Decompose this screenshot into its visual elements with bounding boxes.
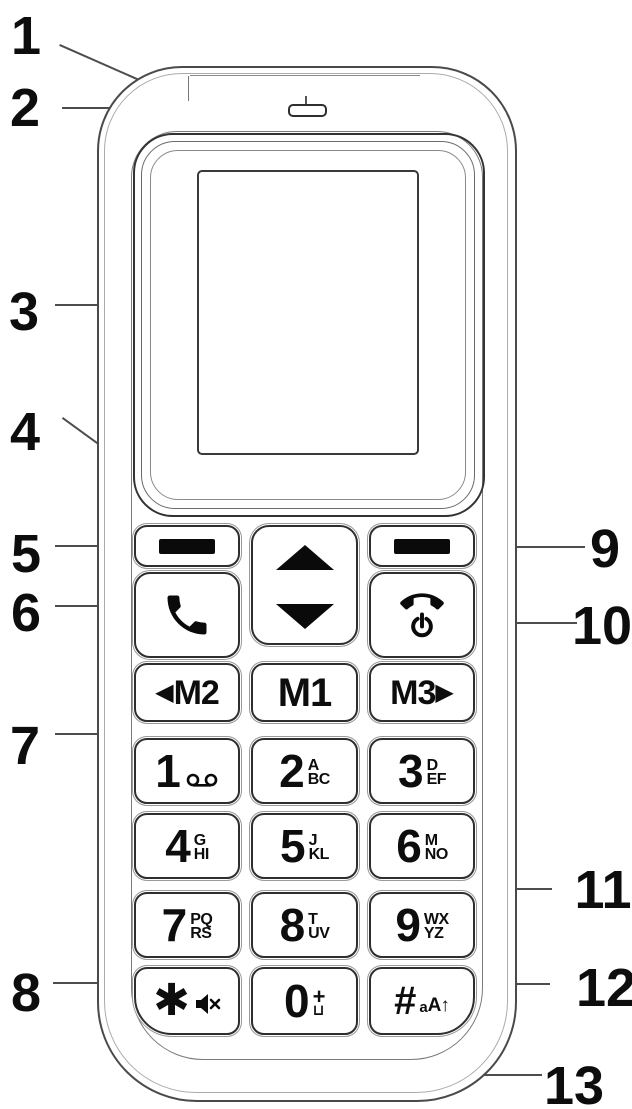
key-7-letters-bottom: RS (190, 927, 211, 941)
earpiece-speaker (288, 104, 327, 117)
left-soft-key (134, 525, 240, 567)
key-m2-label: M2 (174, 676, 219, 710)
key-2: 2 ABC (251, 738, 358, 804)
right-triangle-icon: ▶ (435, 681, 453, 705)
soft-key-bar-icon (159, 539, 215, 554)
soft-key-bar-icon (394, 539, 450, 554)
top-edge-line (190, 75, 420, 76)
key-2-digit: 2 (279, 748, 304, 794)
right-soft-key (369, 525, 475, 567)
case-toggle-arrow: ↑ (440, 996, 450, 1015)
callout-number-4: 4 (10, 405, 40, 459)
key-5-digit: 5 (280, 823, 305, 869)
call-key (134, 572, 240, 658)
key-5: 5 JKL (251, 813, 358, 879)
callout-number-2: 2 (10, 81, 40, 135)
key-star: ✱ (134, 967, 240, 1035)
key-9-letters-bottom: YZ (424, 927, 443, 941)
key-4-digit: 4 (165, 823, 190, 869)
up-arrow-icon (276, 545, 334, 570)
key-0-digit: 0 (284, 978, 309, 1024)
callout-number-3: 3 (9, 285, 39, 339)
key-3-letters-bottom: EF (427, 773, 446, 787)
key-m3-label: M3 (390, 676, 435, 710)
key-5-letters-bottom: KL (309, 848, 329, 862)
key-3-digit: 3 (398, 748, 423, 794)
callout-number-5: 5 (11, 527, 41, 581)
callout-number-9: 9 (590, 522, 620, 576)
down-arrow-icon (276, 604, 334, 629)
voicemail-icon (185, 773, 219, 789)
phone-parts-diagram: 1 2 3 4 5 6 7 8 9 10 11 12 13 (0, 0, 632, 1109)
case-toggle-icon: aA↑ (419, 996, 450, 1015)
callout-number-11: 11 (574, 863, 631, 917)
key-m3: M3▶ (369, 663, 475, 722)
key-6-digit: 6 (396, 823, 421, 869)
key-1: 1 (134, 738, 240, 804)
key-4: 4 GHI (134, 813, 240, 879)
key-9: 9 WXYZ (369, 892, 475, 958)
led-indicator (188, 76, 189, 101)
callout-number-6: 6 (11, 586, 41, 640)
key-6-letters-bottom: NO (425, 848, 448, 862)
key-4-letters-bottom: HI (194, 848, 209, 862)
key-6: 6 MNO (369, 813, 475, 879)
key-2-letters-bottom: BC (308, 773, 330, 787)
key-m1-label: M1 (278, 673, 332, 713)
key-1-digit: 1 (155, 748, 180, 794)
call-icon (161, 589, 213, 641)
callout-number-13: 13 (544, 1059, 604, 1109)
earpiece-tick (305, 96, 307, 104)
case-toggle-uppercase: A (428, 996, 442, 1015)
navigation-up-down-key (251, 525, 358, 645)
key-9-digit: 9 (395, 902, 420, 948)
key-8-letters-bottom: UV (308, 927, 329, 941)
left-triangle-icon: ◀ (155, 681, 173, 705)
space-symbol-icon: ⊔ (313, 1005, 324, 1018)
case-toggle-lowercase: a (419, 1000, 427, 1015)
key-8-digit: 8 (280, 902, 305, 948)
end-power-key (369, 572, 475, 658)
microphone-area (280, 1076, 440, 1078)
key-m2: ◀M2 (134, 663, 240, 722)
callout-number-10: 10 (572, 599, 632, 653)
key-8: 8 TUV (251, 892, 358, 958)
key-m1: M1 (251, 663, 358, 722)
display-screen (197, 170, 419, 455)
callout-number-1: 1 (11, 9, 41, 63)
key-hash-symbol: # (394, 981, 416, 1021)
callout-number-7: 7 (10, 719, 40, 773)
callout-number-12: 12 (576, 961, 632, 1015)
key-7: 7 PQRS (134, 892, 240, 958)
key-0: 0 +⊔ (251, 967, 358, 1035)
key-hash: # aA↑ (369, 967, 475, 1035)
callout-number-8: 8 (11, 966, 41, 1020)
key-3: 3 DEF (369, 738, 475, 804)
mute-speaker-icon (195, 993, 221, 1015)
key-star-symbol: ✱ (153, 979, 190, 1023)
key-7-digit: 7 (162, 902, 187, 948)
end-call-power-icon (399, 589, 445, 641)
